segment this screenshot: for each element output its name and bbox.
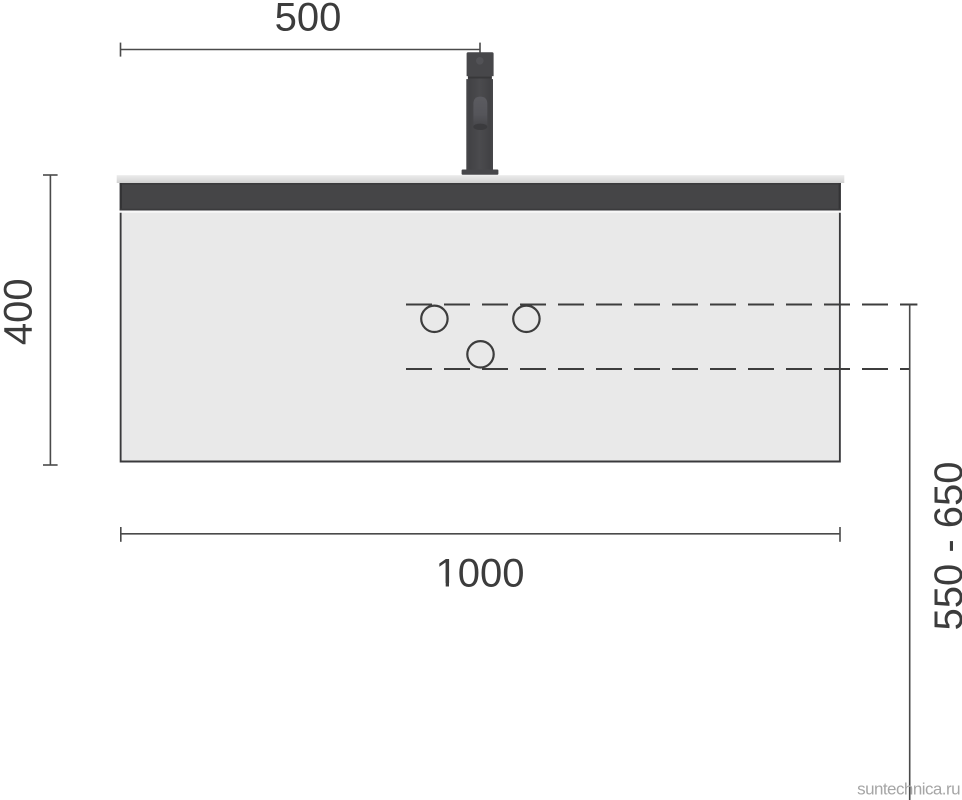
svg-text:suntechnica.ru: suntechnica.ru	[857, 780, 960, 799]
svg-text:500: 500	[275, 0, 342, 40]
svg-text:1000: 1000	[436, 552, 525, 596]
svg-text:550 - 650: 550 - 650	[927, 461, 962, 630]
svg-text:400: 400	[0, 278, 40, 345]
